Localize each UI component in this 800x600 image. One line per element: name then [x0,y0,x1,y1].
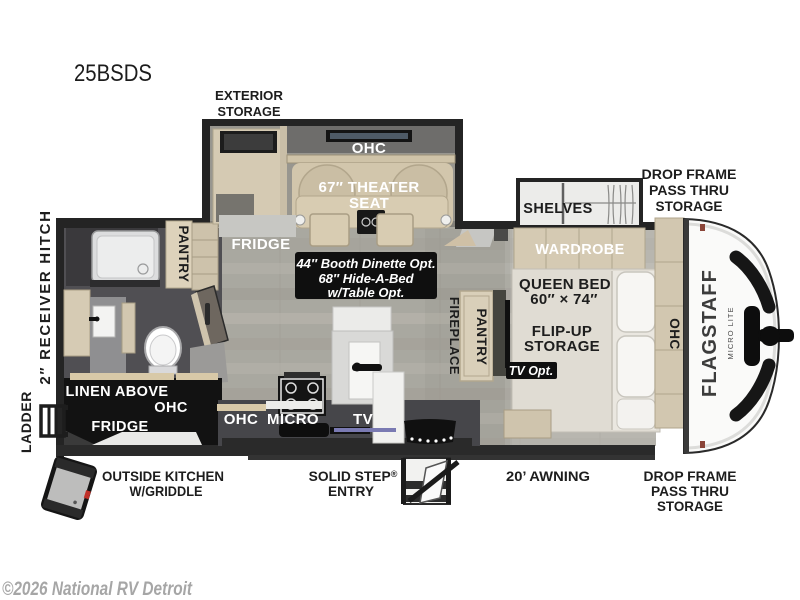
svg-text:EXTERIOR: EXTERIOR [215,88,284,103]
svg-text:MICRO LITE: MICRO LITE [726,307,735,360]
svg-text:LADDER: LADDER [18,391,34,453]
svg-text:STORAGE: STORAGE [657,499,723,514]
svg-text:67″ THEATER: 67″ THEATER [318,179,419,196]
svg-text:FRIDGE: FRIDGE [231,236,290,253]
svg-text:44″ Booth Dinette Opt.: 44″ Booth Dinette Opt. [295,256,435,271]
svg-text:60″ × 74″: 60″ × 74″ [530,291,598,308]
svg-text:PANTRY: PANTRY [176,226,191,283]
svg-text:2″ RECEIVER HITCH: 2″ RECEIVER HITCH [37,209,54,384]
svg-text:FLAGSTAFF: FLAGSTAFF [699,269,721,397]
svg-text:TV Opt.: TV Opt. [509,364,553,378]
svg-text:20’ AWNING: 20’ AWNING [506,469,590,484]
svg-text:PANTRY: PANTRY [474,309,489,366]
svg-text:PASS THRU: PASS THRU [651,484,729,499]
svg-text:OHC: OHC [224,411,259,428]
svg-text:STORAGE: STORAGE [524,338,600,355]
svg-text:PASS THRU: PASS THRU [649,183,729,198]
svg-text:TV: TV [353,411,373,428]
svg-text:STORAGE: STORAGE [656,199,723,214]
svg-text:25BSDS: 25BSDS [74,60,152,87]
svg-text:68″ Hide-A-Bed: 68″ Hide-A-Bed [318,271,414,286]
svg-text:SHELVES: SHELVES [523,201,592,217]
svg-text:DROP FRAME: DROP FRAME [644,469,737,484]
svg-text:OHC: OHC [352,140,387,157]
svg-text:FRIDGE: FRIDGE [91,419,148,435]
svg-text:MICRO: MICRO [267,411,319,428]
svg-text:ENTRY: ENTRY [328,484,374,499]
svg-text:W/GRIDDLE: W/GRIDDLE [130,484,203,499]
svg-text:LINEN ABOVE: LINEN ABOVE [66,384,169,400]
svg-text:SEAT: SEAT [349,195,389,212]
svg-text:OHC: OHC [154,400,188,416]
svg-text:OUTSIDE KITCHEN: OUTSIDE KITCHEN [102,469,224,484]
svg-text:©2026 National RV Detroit: ©2026 National RV Detroit [2,579,193,600]
svg-text:STORAGE: STORAGE [218,104,281,119]
svg-text:DROP FRAME: DROP FRAME [642,167,737,182]
svg-text:SOLID STEP®: SOLID STEP® [309,469,398,484]
svg-text:OHC: OHC [667,318,682,350]
svg-text:WARDROBE: WARDROBE [535,242,624,258]
svg-text:w/Table Opt.: w/Table Opt. [328,285,405,300]
